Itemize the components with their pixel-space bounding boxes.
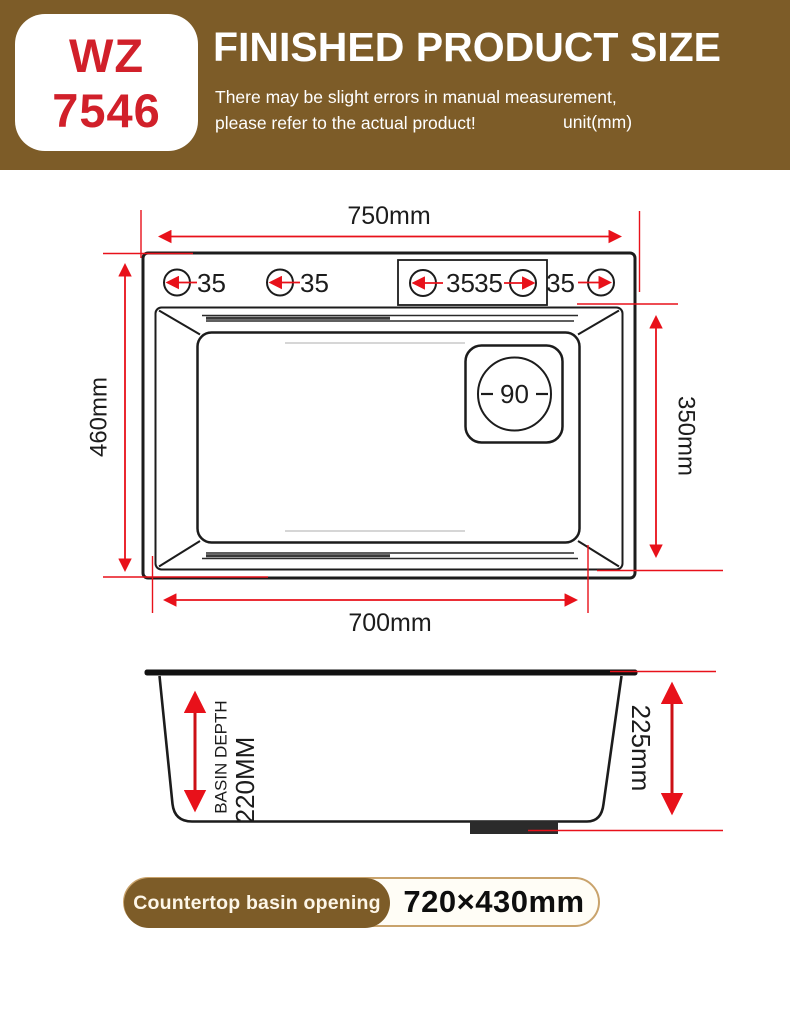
dim-750-label: 750mm bbox=[347, 202, 430, 230]
dimension-diagram: 35 35 35 35 35 bbox=[0, 0, 790, 1010]
sink-outer-outline bbox=[143, 253, 635, 578]
product-size-sheet: WZ 7546 FINISHED PRODUCT SIZE There may … bbox=[0, 0, 790, 1010]
hole4-label: 35 bbox=[474, 268, 503, 298]
dim-700-label: 700mm bbox=[348, 609, 431, 637]
badge-value: 720×430mm bbox=[390, 879, 598, 925]
drain-fitting bbox=[470, 821, 558, 834]
badge-label: Countertop basin opening bbox=[133, 892, 380, 915]
hole5-label: 35 bbox=[546, 268, 575, 298]
basin-depth-label-line1: BASIN DEPTH bbox=[212, 700, 231, 813]
countertop-bar bbox=[145, 670, 638, 676]
dim-350-label: 350mm bbox=[673, 396, 700, 476]
hole1-label: 35 bbox=[197, 268, 226, 298]
basin-inner-outline bbox=[198, 333, 580, 543]
countertop-opening-badge: Countertop basin opening 720×430mm bbox=[123, 877, 600, 927]
side-view: BASIN DEPTH 220MM 225mm bbox=[145, 670, 724, 835]
top-view: 35 35 35 35 35 bbox=[86, 202, 724, 637]
bevel-bottom-left bbox=[159, 541, 200, 567]
basin-depth-label-line2: 220MM bbox=[230, 737, 260, 824]
bevel-top-right bbox=[578, 311, 619, 335]
hole3-label: 35 bbox=[446, 268, 475, 298]
drain-diameter-label: 90 bbox=[500, 379, 529, 409]
hole2-label: 35 bbox=[300, 268, 329, 298]
badge-label-pill: Countertop basin opening bbox=[124, 878, 390, 928]
bevel-top-left bbox=[159, 311, 200, 335]
bevel-bottom-right bbox=[578, 541, 619, 567]
dim-460-label: 460mm bbox=[86, 377, 113, 457]
dim-225-label: 225mm bbox=[626, 705, 656, 792]
